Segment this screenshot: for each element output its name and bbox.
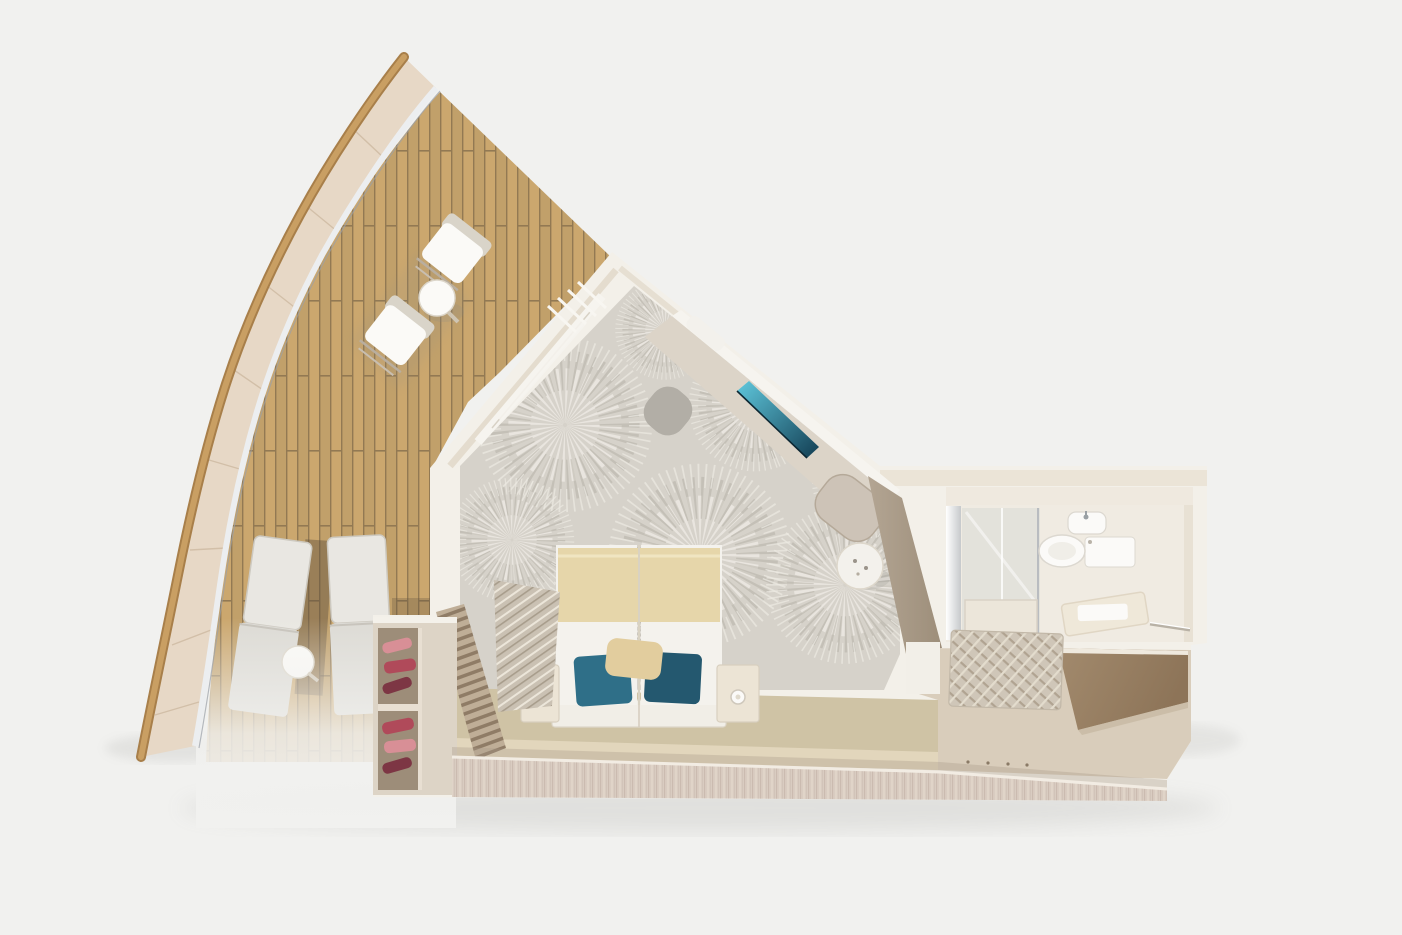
lounger-1-back xyxy=(243,535,313,630)
toilet-lid xyxy=(1085,537,1135,567)
render-canvas xyxy=(0,0,1402,935)
wardrobe-divider xyxy=(418,628,422,790)
stool-speck-1 xyxy=(853,559,857,563)
toilet-flush-button xyxy=(1088,540,1092,544)
balcony-round-table xyxy=(419,280,455,316)
toilet-seat-inner xyxy=(1048,542,1076,560)
vanity-mirror xyxy=(946,506,961,640)
pillow-beige-center xyxy=(604,637,664,681)
wardrobe xyxy=(373,617,457,795)
bathroom xyxy=(946,487,1193,642)
textured-accent-wall xyxy=(494,580,560,712)
lounger-2-back xyxy=(327,535,389,624)
stool-speck-3 xyxy=(856,572,859,575)
toilet xyxy=(1039,535,1135,567)
floor-marker-3 xyxy=(1006,762,1009,765)
floorplan-render xyxy=(0,0,1402,935)
floor-marker-4 xyxy=(1025,763,1028,766)
entry-corridor xyxy=(906,630,1191,779)
stool-top xyxy=(837,543,883,589)
woven-rug xyxy=(949,630,1064,710)
lamp-right-top xyxy=(736,695,741,700)
bathroom-right-face xyxy=(1184,505,1193,642)
folded-towel xyxy=(1077,603,1128,621)
shower xyxy=(962,508,1040,640)
sink xyxy=(1068,511,1106,534)
nightstand-right xyxy=(717,665,759,722)
bathroom-top-wall xyxy=(946,487,1193,505)
corridor-wall-stub xyxy=(906,642,940,694)
stool-speck-2 xyxy=(864,566,868,570)
wardrobe-top-cap xyxy=(373,617,457,623)
floor-marker-1 xyxy=(966,760,969,763)
floor-marker-2 xyxy=(986,761,989,764)
wardrobe-shelf xyxy=(378,704,420,711)
bathroom-top-face xyxy=(880,470,1207,486)
